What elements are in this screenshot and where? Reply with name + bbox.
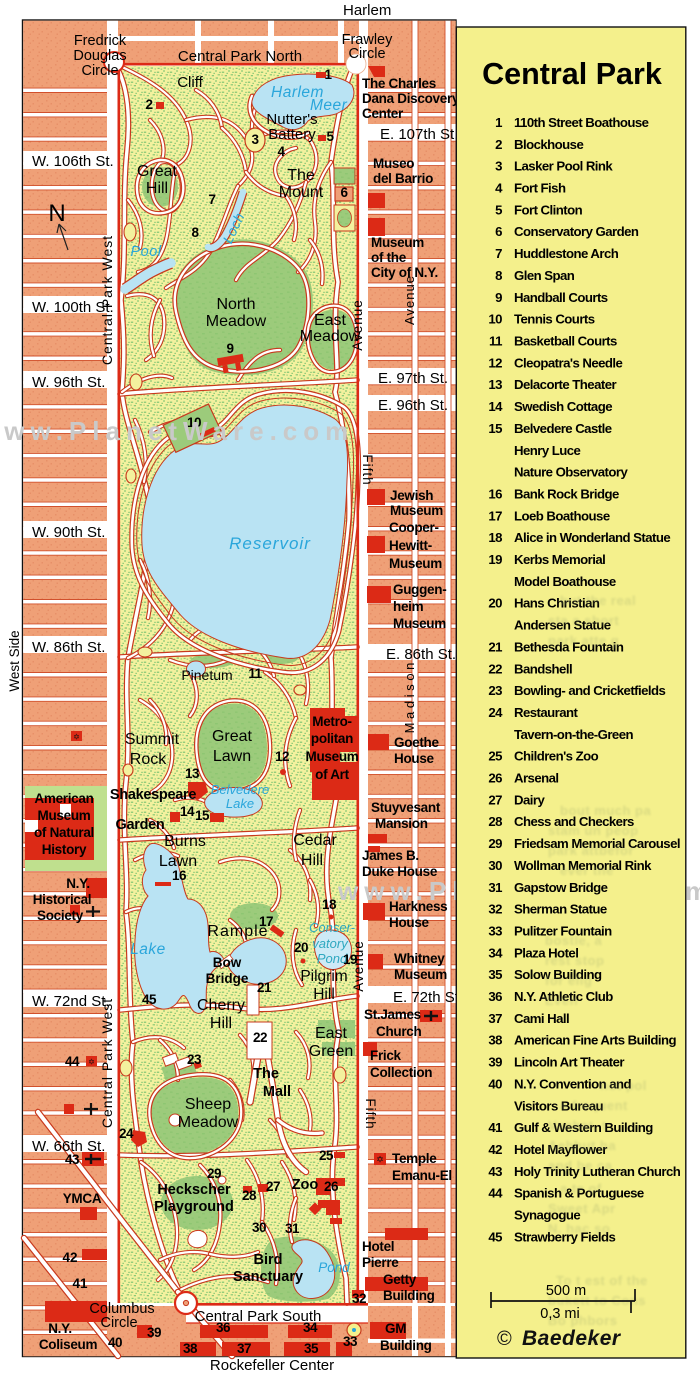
svg-text:35: 35 <box>488 967 502 982</box>
svg-text:4: 4 <box>495 181 503 196</box>
svg-text:Getty: Getty <box>383 1272 417 1287</box>
svg-text:34: 34 <box>488 945 503 960</box>
svg-text:✡: ✡ <box>88 1058 95 1067</box>
svg-text:Alice in Wonderland Statue: Alice in Wonderland Statue <box>514 530 670 545</box>
svg-text:©: © <box>497 1328 512 1350</box>
svg-text:2: 2 <box>145 97 152 112</box>
svg-text:Meer: Meer <box>310 97 348 114</box>
svg-text:Circle: Circle <box>100 1315 137 1331</box>
svg-text:11: 11 <box>248 666 262 681</box>
svg-text:Museo: Museo <box>373 156 414 171</box>
svg-text:9: 9 <box>495 290 502 305</box>
svg-text:a te of: a te of <box>560 1181 602 1196</box>
svg-text:28: 28 <box>488 814 502 829</box>
svg-text:3: 3 <box>495 159 502 174</box>
svg-text:Central Park North: Central Park North <box>178 48 302 65</box>
svg-text:0,3 mi: 0,3 mi <box>540 1306 580 1322</box>
svg-text:American: American <box>34 791 93 806</box>
svg-text:31: 31 <box>285 1221 300 1236</box>
svg-text:Society: Society <box>37 908 84 923</box>
svg-text:Conservatory Garden: Conservatory Garden <box>514 224 639 239</box>
svg-text:Church: Church <box>376 1024 422 1039</box>
svg-text:37: 37 <box>237 1341 251 1356</box>
svg-text:Summit: Summit <box>125 731 180 748</box>
svg-text:N.Y.: N.Y. <box>66 876 90 891</box>
svg-text:27: 27 <box>488 792 502 807</box>
svg-text:13: 13 <box>488 377 502 392</box>
svg-text:History: History <box>42 842 87 857</box>
svg-text:Hotel: Hotel <box>362 1239 394 1254</box>
svg-text:Lake: Lake <box>226 796 254 811</box>
svg-text:19: 19 <box>343 952 357 967</box>
svg-text:Metro-: Metro- <box>312 714 351 729</box>
svg-text:500 m: 500 m <box>546 1283 586 1299</box>
svg-text:42: 42 <box>62 1250 77 1265</box>
svg-text:Zoo: Zoo <box>292 1177 319 1193</box>
svg-text:Mansion: Mansion <box>375 816 428 831</box>
svg-text:Coliseum: Coliseum <box>39 1337 98 1352</box>
svg-text:Sanctuary: Sanctuary <box>233 1269 303 1285</box>
svg-text:14: 14 <box>180 804 195 819</box>
svg-text:The: The <box>253 1066 279 1082</box>
svg-text:GM: GM <box>385 1321 406 1336</box>
svg-text:15: 15 <box>195 808 210 823</box>
svg-text:Jewish: Jewish <box>390 488 433 503</box>
svg-text:13: 13 <box>185 766 200 781</box>
svg-text:W. 86th St.: W. 86th St. <box>32 639 105 656</box>
svg-text:Handball Courts: Handball Courts <box>514 290 608 305</box>
svg-text:Glen Span: Glen Span <box>514 268 575 283</box>
svg-text:North: North <box>216 296 255 313</box>
svg-text:7: 7 <box>495 246 502 261</box>
svg-text:19: 19 <box>488 552 502 567</box>
svg-text:heim: heim <box>393 599 424 614</box>
svg-text:27: 27 <box>266 1179 280 1194</box>
svg-text:41: 41 <box>72 1276 88 1291</box>
svg-text:45: 45 <box>142 992 157 1007</box>
svg-text:Green: Green <box>309 1043 353 1060</box>
svg-text:17: 17 <box>488 508 502 523</box>
svg-text:M a d i s o n: M a d i s o n <box>402 663 417 734</box>
svg-text:2: 2 <box>495 137 502 152</box>
svg-text:Fredrick: Fredrick <box>74 33 127 49</box>
svg-text:Fort Clinton: Fort Clinton <box>514 202 583 217</box>
svg-text:E. 97th St.: E. 97th St. <box>378 370 448 387</box>
svg-text:House: House <box>394 751 435 766</box>
svg-text:N.Y.: N.Y. <box>48 1321 72 1336</box>
svg-text:Cooper-: Cooper- <box>389 520 439 535</box>
svg-text:Central Park: Central Park <box>482 57 662 91</box>
svg-text:10: 10 <box>488 312 502 327</box>
svg-text:St.James: St.James <box>364 1007 421 1022</box>
svg-text:8: 8 <box>191 225 199 240</box>
svg-text:E. 96th St.: E. 96th St. <box>378 397 448 414</box>
svg-text:Building: Building <box>383 1288 435 1303</box>
svg-text:12: 12 <box>488 355 502 370</box>
svg-text:34: 34 <box>303 1320 318 1335</box>
svg-text:45: 45 <box>488 1229 502 1244</box>
svg-text:25: 25 <box>319 1148 334 1163</box>
svg-text:12: 12 <box>275 749 289 764</box>
svg-text:36: 36 <box>216 1320 231 1335</box>
svg-text:Bow: Bow <box>213 955 242 970</box>
svg-text:Kerbs Memorial: Kerbs Memorial <box>514 552 605 567</box>
svg-text:18: 18 <box>322 897 337 912</box>
svg-text:Goethe: Goethe <box>394 735 439 750</box>
svg-text:N. hac so: N. hac so <box>548 1221 610 1236</box>
svg-text:Museum: Museum <box>371 235 424 250</box>
svg-text:bostle, a: bostle, a <box>545 933 603 948</box>
svg-text:Lincoln Art Theater: Lincoln Art Theater <box>514 1055 624 1070</box>
svg-text:E. 86th St.: E. 86th St. <box>386 646 456 663</box>
svg-text:30: 30 <box>488 858 502 873</box>
svg-text:Cliff: Cliff <box>177 74 203 91</box>
svg-text:Belvedere Castle: Belvedere Castle <box>514 421 612 436</box>
svg-text:9: 9 <box>226 341 233 356</box>
svg-text:110th Street Boathouse: 110th Street Boathouse <box>514 115 649 130</box>
svg-text:26: 26 <box>324 1179 339 1194</box>
svg-text:Sweet Apr: Sweet Apr <box>548 1201 616 1216</box>
svg-text:Children's Zoo: Children's Zoo <box>514 749 599 764</box>
svg-text:Gapstow Bridge: Gapstow Bridge <box>514 880 608 895</box>
svg-text:YMCA: YMCA <box>63 1191 102 1206</box>
svg-text:11: 11 <box>489 334 502 349</box>
svg-text:4: 4 <box>277 144 285 159</box>
svg-text:22: 22 <box>488 661 502 676</box>
svg-text:35: 35 <box>304 1341 319 1356</box>
svg-text:Restaurant: Restaurant <box>514 705 579 720</box>
svg-text:Harlem: Harlem <box>343 2 391 19</box>
svg-text:5: 5 <box>495 202 502 217</box>
svg-text:31: 31 <box>488 880 502 895</box>
svg-text:Hill: Hill <box>146 180 168 197</box>
svg-text:21: 21 <box>257 980 272 995</box>
svg-text:Tennis Courts: Tennis Courts <box>514 312 595 327</box>
svg-text:bout much pa: bout much pa <box>560 803 651 818</box>
svg-text:W. 72nd St.: W. 72nd St. <box>32 993 110 1010</box>
svg-text:Circle: Circle <box>81 63 118 79</box>
svg-text:East: East <box>315 1025 348 1042</box>
svg-text:politan: politan <box>311 731 353 746</box>
svg-text:park atte g: park atte g <box>548 633 619 648</box>
svg-text:33: 33 <box>488 924 502 939</box>
svg-text:41: 41 <box>488 1120 502 1135</box>
svg-text:park attbefor: park attbefor <box>548 843 634 858</box>
svg-text:Battery: Battery <box>268 126 316 143</box>
svg-text:Shakespeare: Shakespeare <box>110 787 196 803</box>
svg-text:40: 40 <box>488 1076 502 1091</box>
svg-text:Delacorte Theater: Delacorte Theater <box>514 377 616 392</box>
svg-text:sta a short: sta a short <box>548 613 619 628</box>
svg-text:40: 40 <box>108 1335 122 1350</box>
svg-text:Central Park West: Central Park West <box>99 998 115 1128</box>
svg-text:Pond: Pond <box>318 1260 350 1275</box>
svg-text:39: 39 <box>488 1055 502 1070</box>
svg-text:Dana Discovery: Dana Discovery <box>362 91 460 106</box>
svg-text:Mall: Mall <box>263 1084 291 1100</box>
svg-text:Basketball Courts: Basketball Courts <box>514 334 617 349</box>
svg-text:Aebhut ha: Aebhut ha <box>548 1138 616 1153</box>
svg-text:for elig: for elig <box>545 973 592 988</box>
svg-text:The Charles: The Charles <box>362 76 436 91</box>
svg-text:Whitney: Whitney <box>394 951 445 966</box>
svg-text:1: 1 <box>495 115 502 130</box>
svg-text:Cleopatra's Needle: Cleopatra's Needle <box>514 355 623 370</box>
svg-text:Sherman Statue: Sherman Statue <box>514 902 607 917</box>
svg-text:Building: Building <box>380 1338 432 1353</box>
svg-text:Museum: Museum <box>394 967 447 982</box>
svg-text:✡: ✡ <box>73 733 80 742</box>
svg-text:44: 44 <box>65 1054 80 1069</box>
svg-text:Tavern-on-the-Green: Tavern-on-the-Green <box>514 727 633 742</box>
svg-text:City of N.Y.: City of N.Y. <box>371 265 438 280</box>
svg-text:East: East <box>314 312 347 329</box>
svg-text:1: 1 <box>324 67 332 82</box>
svg-text:✡: ✡ <box>376 1155 384 1165</box>
svg-text:Guggen-: Guggen- <box>393 582 446 597</box>
svg-text:32: 32 <box>352 1291 366 1306</box>
svg-text:Frick: Frick <box>370 1048 402 1063</box>
svg-text:Museum: Museum <box>306 749 359 764</box>
svg-text:43: 43 <box>65 1152 80 1167</box>
svg-text:Reservoir: Reservoir <box>229 534 311 553</box>
svg-text:West Side: West Side <box>7 630 22 691</box>
svg-text:Cedar: Cedar <box>293 832 337 849</box>
svg-text:Hewitt-: Hewitt- <box>389 538 432 553</box>
svg-text:a frequent: a frequent <box>560 1098 628 1113</box>
svg-text:Pierre: Pierre <box>362 1255 399 1270</box>
svg-text:www.PlanetWare.com: www.PlanetWare.com <box>0 416 354 446</box>
svg-text:W. 90th St.: W. 90th St. <box>32 524 105 541</box>
svg-text:38: 38 <box>488 1033 502 1048</box>
svg-text:ever the: ever the <box>560 863 614 878</box>
svg-text:Museum: Museum <box>390 503 443 518</box>
svg-text:Fifth: Fifth <box>363 1098 378 1129</box>
svg-text:Fifth: Fifth <box>360 454 375 485</box>
svg-text:16: 16 <box>172 868 187 883</box>
svg-text:Bank Rock Bridge: Bank Rock Bridge <box>514 487 619 502</box>
svg-text:stam un peop: stam un peop <box>548 823 639 838</box>
svg-text:Swedish Cottage: Swedish Cottage <box>514 399 612 414</box>
svg-text:Heckscher: Heckscher <box>157 1182 231 1198</box>
svg-text:Temple: Temple <box>392 1151 437 1166</box>
svg-text:16: 16 <box>488 487 502 502</box>
svg-text:Rock: Rock <box>130 751 167 768</box>
svg-text:Bridge: Bridge <box>206 971 249 986</box>
svg-text:Vanhat, t: Vanhat, t <box>548 1118 607 1133</box>
svg-text:and be ca: and be ca <box>548 1158 613 1173</box>
svg-text:E. 107th St.: E. 107th St. <box>380 126 458 143</box>
svg-text:Hill: Hill <box>210 1015 232 1032</box>
svg-text:Center: Center <box>362 106 404 121</box>
svg-text:Lasker Pool Rink: Lasker Pool Rink <box>514 159 613 174</box>
svg-text:of the: of the <box>371 250 407 265</box>
svg-text:N: N <box>48 200 65 227</box>
svg-text:Great: Great <box>137 163 178 180</box>
svg-text:W. 106th St.: W. 106th St. <box>32 153 114 170</box>
svg-text:Douglas: Douglas <box>73 48 126 64</box>
svg-text:21: 21 <box>488 639 502 654</box>
svg-text:7: 7 <box>208 192 215 207</box>
svg-text:but the real: but the real <box>560 593 636 608</box>
svg-text:38: 38 <box>183 1341 198 1356</box>
svg-text:36: 36 <box>488 989 502 1004</box>
svg-text:24: 24 <box>488 705 503 720</box>
svg-text:The: The <box>287 167 315 184</box>
svg-text:20: 20 <box>488 596 502 611</box>
svg-text:17: 17 <box>259 914 273 929</box>
svg-text:3: 3 <box>251 132 259 147</box>
svg-text:Burns: Burns <box>164 833 206 850</box>
svg-text:of Natural: of Natural <box>34 825 94 840</box>
svg-text:Circle: Circle <box>348 46 385 62</box>
svg-text:Meadow: Meadow <box>300 328 361 345</box>
svg-text:32: 32 <box>488 902 502 917</box>
svg-text:Emanu-El: Emanu-El <box>392 1168 452 1183</box>
svg-text:of Art: of Art <box>315 767 349 782</box>
svg-text:6: 6 <box>340 185 348 200</box>
svg-text:E. 72th St.: E. 72th St. <box>393 989 463 1006</box>
svg-text:43: 43 <box>488 1164 502 1179</box>
svg-text:28: 28 <box>242 1188 257 1203</box>
svg-text:vatory: vatory <box>312 936 349 951</box>
svg-text:Even: Even <box>545 993 578 1008</box>
svg-text:Baedeker: Baedeker <box>522 1327 622 1350</box>
svg-text:Blockhouse: Blockhouse <box>514 137 583 152</box>
svg-text:29: 29 <box>488 836 502 851</box>
svg-text:37: 37 <box>488 1011 502 1026</box>
svg-text:rest stop: rest stop <box>545 953 604 968</box>
svg-text:Lake: Lake <box>130 941 166 958</box>
svg-text:8: 8 <box>495 268 502 283</box>
svg-text:Conser-: Conser- <box>309 920 356 935</box>
svg-text:Dairy: Dairy <box>514 792 545 807</box>
svg-text:18: 18 <box>488 530 502 545</box>
svg-text:Meadow: Meadow <box>206 313 267 330</box>
svg-text:Nature Observatory: Nature Observatory <box>514 465 628 480</box>
svg-text:Collection: Collection <box>370 1065 432 1080</box>
svg-text:20: 20 <box>294 940 308 955</box>
svg-text:30: 30 <box>252 1220 266 1235</box>
svg-text:James B.: James B. <box>362 848 419 863</box>
svg-text:Meadow: Meadow <box>178 1114 239 1131</box>
svg-text:Hill: Hill <box>313 986 335 1003</box>
svg-text:25: 25 <box>488 749 502 764</box>
svg-text:42: 42 <box>488 1142 502 1157</box>
svg-text:Fort Fish: Fort Fish <box>514 181 566 196</box>
svg-text:Bandshell: Bandshell <box>514 661 572 676</box>
svg-text:Playground: Playground <box>154 1199 234 1215</box>
svg-text:Arsenal: Arsenal <box>514 771 559 786</box>
svg-text:del Barrio: del Barrio <box>373 171 433 186</box>
svg-text:Loeb Boathouse: Loeb Boathouse <box>514 508 610 523</box>
svg-text:23: 23 <box>488 683 502 698</box>
svg-text:6: 6 <box>495 224 502 239</box>
svg-text:W. 96th St.: W. 96th St. <box>32 374 105 391</box>
svg-text:Great: Great <box>212 728 253 745</box>
svg-text:Hill: Hill <box>301 852 323 869</box>
svg-text:Pinetum: Pinetum <box>181 667 232 683</box>
svg-text:Mount: Mount <box>279 184 324 201</box>
svg-text:5: 5 <box>326 129 334 144</box>
svg-text:Sheep: Sheep <box>185 1096 231 1113</box>
svg-text:22: 22 <box>253 1030 267 1045</box>
svg-text:Museum: Museum <box>38 808 91 823</box>
svg-text:Garden: Garden <box>116 817 165 833</box>
svg-text:American Fine Arts Building: American Fine Arts Building <box>514 1033 676 1048</box>
svg-text:Cami Hall: Cami Hall <box>514 1011 569 1026</box>
svg-text:Lawn: Lawn <box>213 748 251 765</box>
svg-text:Pool: Pool <box>130 244 161 260</box>
svg-text:Avenue: Avenue <box>402 275 417 325</box>
svg-text:14: 14 <box>488 399 503 414</box>
svg-text:Stuyvesant: Stuyvesant <box>371 800 441 815</box>
svg-text:Huddlestone Arch: Huddlestone Arch <box>514 246 619 261</box>
svg-text:Bowling- and Cricketfields: Bowling- and Cricketfields <box>514 683 666 698</box>
svg-text:Bird: Bird <box>254 1252 283 1268</box>
svg-text:Historical: Historical <box>33 892 92 907</box>
svg-text:Museum: Museum <box>389 556 442 571</box>
svg-text:24: 24 <box>119 1126 134 1141</box>
svg-text:33: 33 <box>343 1334 358 1349</box>
svg-text:29: 29 <box>207 1166 221 1181</box>
svg-text:Belvedere: Belvedere <box>211 782 270 797</box>
svg-text:Model Boathouse: Model Boathouse <box>514 574 616 589</box>
svg-text:44: 44 <box>488 1186 503 1201</box>
svg-text:Rockefeller Center: Rockefeller Center <box>210 1357 334 1374</box>
svg-text:Pilgrim: Pilgrim <box>300 968 347 985</box>
svg-text:Museum: Museum <box>393 616 446 631</box>
svg-text:Cherry: Cherry <box>197 997 245 1014</box>
svg-text:23: 23 <box>187 1052 202 1067</box>
svg-text:26: 26 <box>488 771 502 786</box>
svg-text:15: 15 <box>488 421 502 436</box>
svg-text:Henry Luce: Henry Luce <box>514 443 581 458</box>
svg-text:39: 39 <box>147 1325 161 1340</box>
svg-text:not pol: not pol <box>600 1078 647 1093</box>
svg-text:House: House <box>389 915 430 930</box>
svg-text:Central Park West: Central Park West <box>99 235 115 365</box>
